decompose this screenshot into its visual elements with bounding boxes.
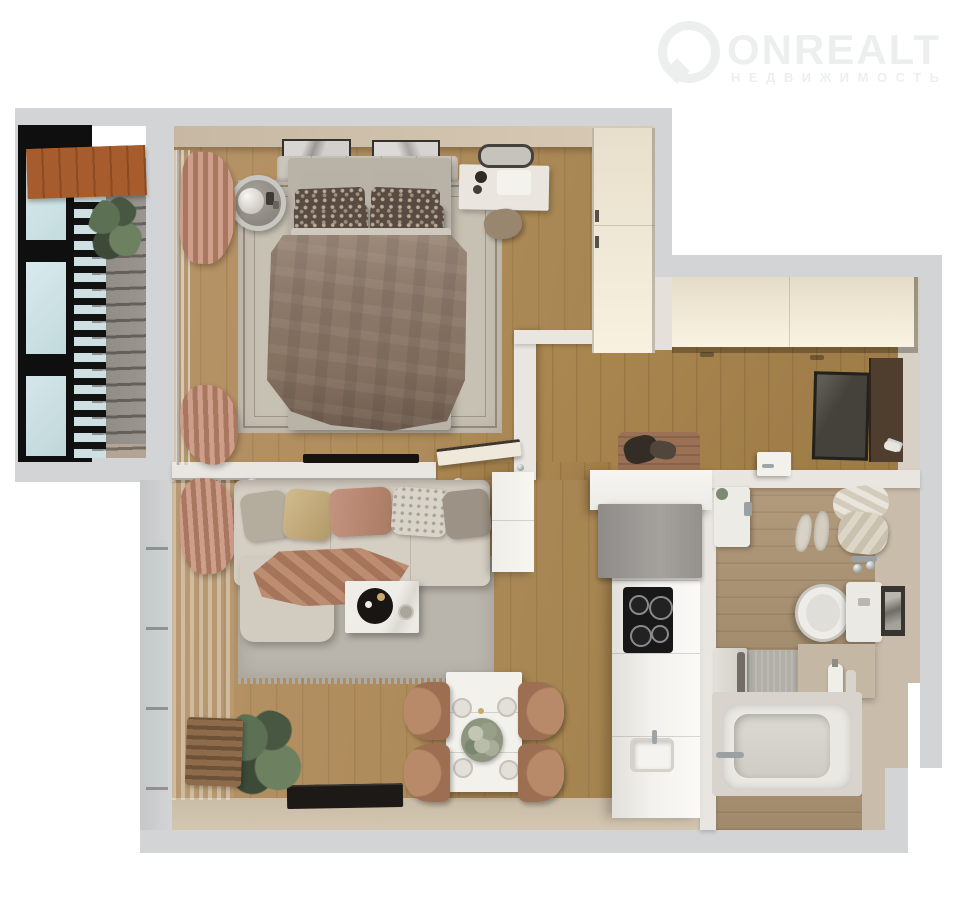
bathtub-basin xyxy=(734,714,830,778)
dining-chair-3 xyxy=(518,682,564,740)
towel-roll-2 xyxy=(836,510,890,557)
plate-1 xyxy=(452,698,472,718)
burner-2 xyxy=(649,596,673,620)
induction-cooktop xyxy=(623,587,673,653)
mixer-knob-1 xyxy=(853,564,862,573)
kitchen-faucet xyxy=(652,730,657,744)
coffee-table-saucer xyxy=(398,604,414,620)
vanity-wall-mirror xyxy=(478,144,534,168)
wardrobe-seam xyxy=(594,225,655,226)
toilet-seat xyxy=(806,594,840,632)
table-bouquet xyxy=(461,718,503,762)
wall-corridor-corner xyxy=(514,330,536,480)
ceiling-spot-1 xyxy=(700,352,714,357)
coffee-table-tray xyxy=(357,588,393,624)
mixer-knob-2 xyxy=(866,561,875,570)
living-left-window-frames xyxy=(146,540,168,790)
plate-4 xyxy=(499,760,519,780)
desk-item-dark-2 xyxy=(473,185,482,194)
counter-seam-1 xyxy=(612,580,700,581)
dining-chair-4 xyxy=(518,744,564,802)
sofa-pillow-taupe xyxy=(442,488,493,541)
wall-balcony-bedroom-divider xyxy=(146,120,174,482)
wardrobe-handle-1 xyxy=(595,210,599,222)
table-lamp-sphere xyxy=(238,188,264,214)
plate-2 xyxy=(497,697,517,717)
wall-bath-top xyxy=(700,470,920,488)
living-wall-tv xyxy=(287,783,403,809)
soap-pump xyxy=(832,659,838,667)
balcony-glass-pane-3 xyxy=(26,376,66,456)
tub-faucet xyxy=(716,752,744,758)
burner-1 xyxy=(629,595,649,615)
basin-faucet xyxy=(744,502,752,516)
floorplan-canvas: ONREALT НЕДВИЖИМОСТЬ xyxy=(0,0,960,910)
desk-pad xyxy=(497,170,531,195)
flush-button xyxy=(858,598,870,606)
bed-duvet xyxy=(267,235,467,431)
slat-bench xyxy=(185,717,243,787)
wall-bedroom-hall-lower xyxy=(652,277,672,350)
bath-wall-art xyxy=(881,586,905,636)
ceiling-spot-2 xyxy=(810,355,824,360)
wardrobe-handle-2 xyxy=(595,236,599,248)
perfume-bottle-small xyxy=(273,201,279,209)
table-gold-deco xyxy=(478,708,484,714)
hall-closet-edge xyxy=(914,277,918,347)
balcony-plant xyxy=(88,196,142,266)
sofa-pillow-gold xyxy=(282,488,334,542)
hall-closet xyxy=(672,277,918,347)
desk-item-dark xyxy=(475,171,487,183)
bedroom-wall-tv xyxy=(303,454,419,463)
balcony-brick-wall xyxy=(26,145,147,199)
wall-right xyxy=(920,277,942,768)
brand-name: ONREALT xyxy=(727,26,941,74)
door-hinge xyxy=(517,464,524,471)
house-icon-door xyxy=(684,52,693,62)
balcony-glass-pane-2 xyxy=(26,262,66,354)
white-cabinet xyxy=(492,472,534,572)
wall-bottom xyxy=(140,830,908,853)
hall-closet-seam xyxy=(789,277,790,347)
wall-hall-top xyxy=(655,255,942,277)
hall-leaning-mirror xyxy=(812,371,870,460)
sofa-pillow-rose xyxy=(329,486,393,537)
toilet-tank xyxy=(846,582,882,642)
plate-3 xyxy=(453,758,473,778)
burner-4 xyxy=(651,625,669,643)
burner-3 xyxy=(630,625,652,647)
wardrobe-edge xyxy=(652,128,655,353)
tray-gold-item xyxy=(377,593,385,601)
dining-chair-2 xyxy=(404,744,450,802)
bedroom-wardrobe xyxy=(592,128,655,353)
dining-chair-1 xyxy=(404,682,450,740)
wall-bedroom-right-outer xyxy=(655,108,672,278)
counter-seam-2 xyxy=(612,653,700,654)
wall-top xyxy=(15,108,672,126)
bath-wall-art-photo xyxy=(885,592,901,630)
tall-cabinet-fridge xyxy=(598,504,702,578)
sofa-pillow-boucle xyxy=(390,486,449,538)
basin-plant xyxy=(716,488,728,500)
tray-white-item xyxy=(365,601,372,608)
brand-tagline: НЕДВИЖИМОСТЬ xyxy=(731,70,947,85)
bath-door-handle xyxy=(762,464,774,468)
cabinet-seam xyxy=(492,520,534,521)
